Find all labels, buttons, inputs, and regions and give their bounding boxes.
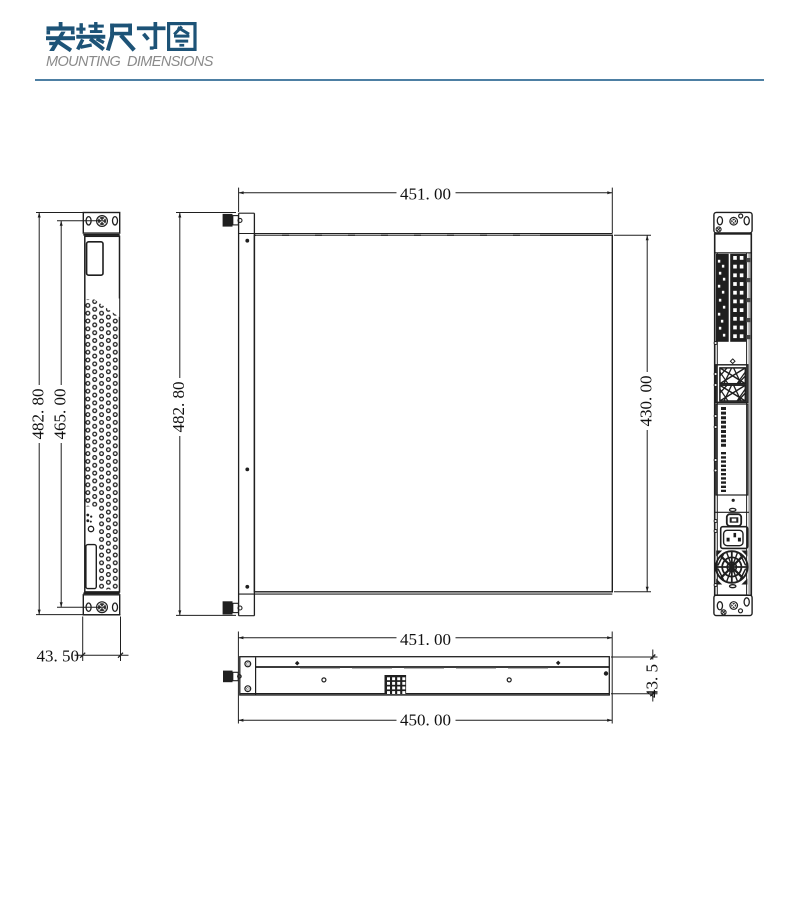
svg-text:450. 00: 450. 00 <box>400 711 451 730</box>
svg-text:451. 00: 451. 00 <box>400 630 451 649</box>
svg-text:430. 00: 430. 00 <box>637 376 656 427</box>
svg-text:451. 00: 451. 00 <box>400 185 451 204</box>
svg-text:482. 80: 482. 80 <box>29 389 48 440</box>
svg-text:482. 80: 482. 80 <box>169 382 188 433</box>
svg-text:465. 00: 465. 00 <box>51 389 70 440</box>
svg-text:43. 50: 43. 50 <box>37 647 80 666</box>
svg-text:43. 5: 43. 5 <box>642 664 661 698</box>
